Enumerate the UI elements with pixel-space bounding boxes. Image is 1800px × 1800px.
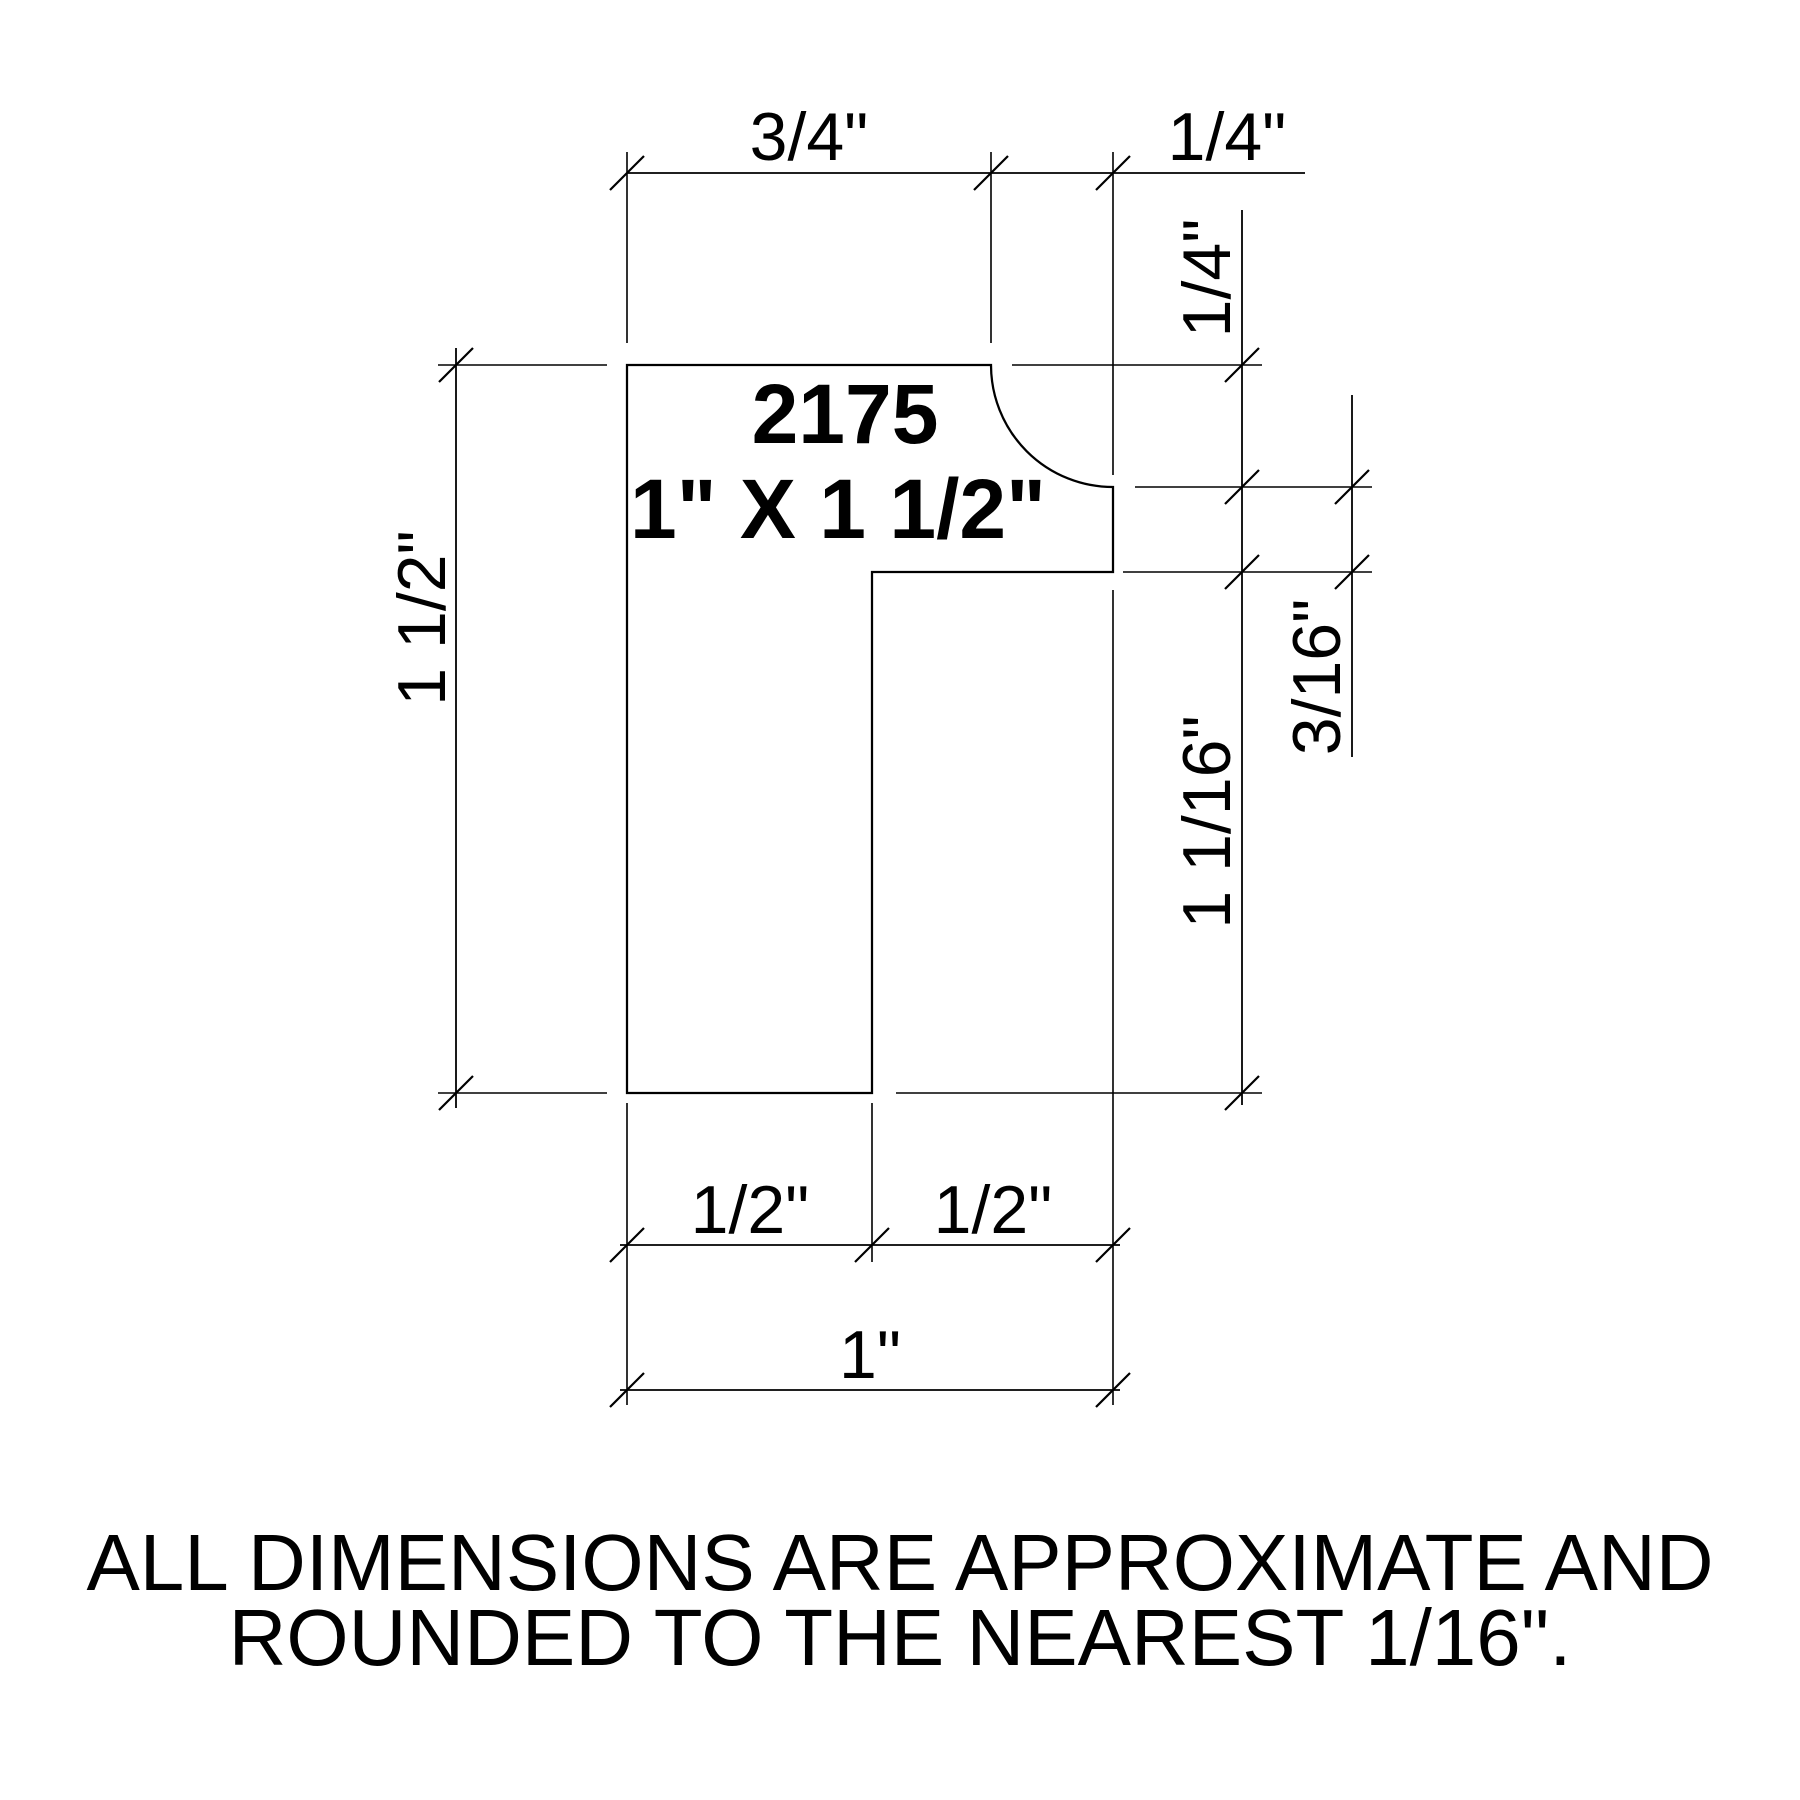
dim-label-top-flat: 3/4" (750, 99, 869, 175)
note-line-2: ROUNDED TO THE NEAREST 1/16". (229, 1593, 1572, 1682)
dim-label-cove-depth: 1/4" (1169, 219, 1245, 338)
part-number-label: 2175 (752, 367, 939, 461)
dim-label-top-cove: 1/4" (1168, 99, 1287, 175)
dim-label-overall-width: 1" (839, 1317, 901, 1393)
dim-label-right-step: 3/16" (1279, 599, 1355, 756)
footer-note: ALL DIMENSIONS ARE APPROXIMATE AND ROUND… (86, 1518, 1713, 1682)
dim-label-bottom-left-half: 1/2" (691, 1172, 810, 1248)
part-size-label: 1" X 1 1/2" (630, 462, 1046, 556)
dim-label-bottom-right-half: 1/2" (934, 1172, 1053, 1248)
dim-label-notch-height: 1 1/16" (1169, 715, 1245, 928)
moulding-profile-drawing: 3/4" 1/4" 1/4" 3/16" 1 1/16" 1 1/2" 1/2"… (0, 0, 1800, 1800)
dim-label-overall-height: 1 1/2" (384, 530, 460, 705)
